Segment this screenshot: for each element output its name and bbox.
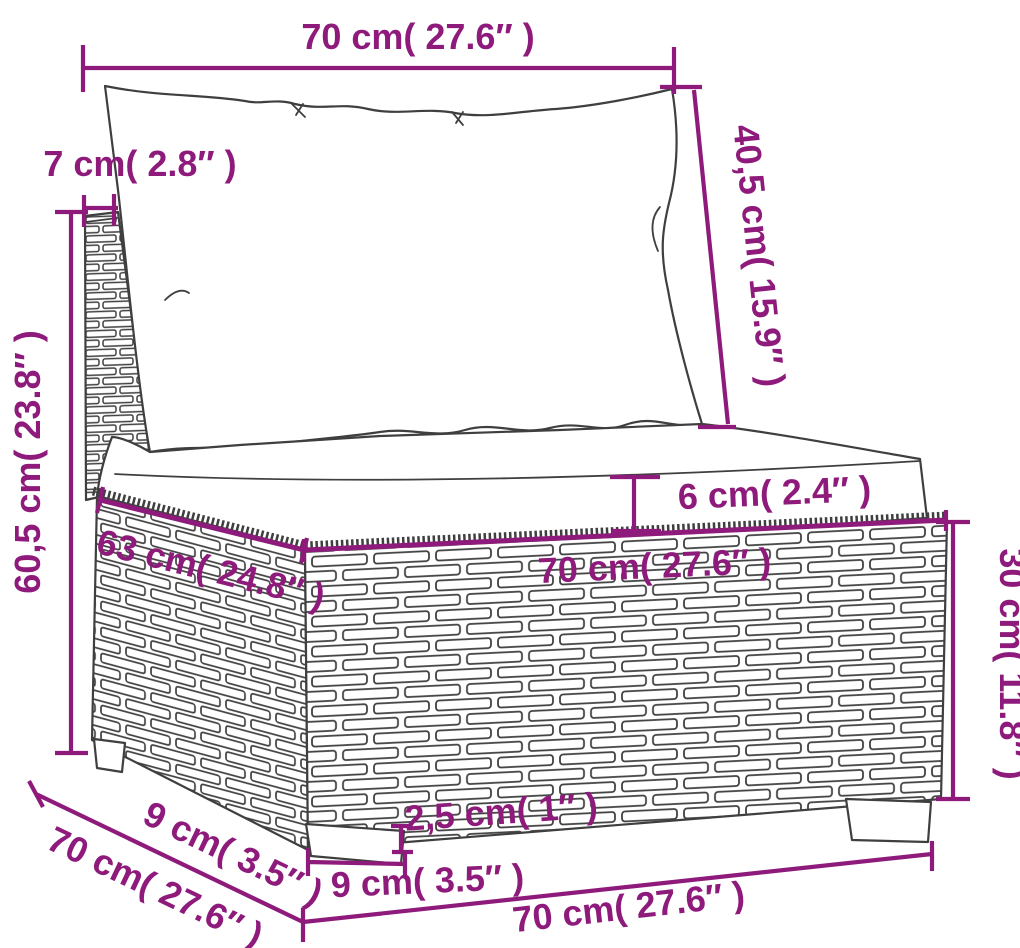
back-cushion-height-label: 40,5 cm( 15.9″ ) xyxy=(725,123,793,389)
dim-base-height: 30 cm( 11.8″ ) xyxy=(936,522,1020,799)
base-height-label: 30 cm( 11.8″ ) xyxy=(992,548,1020,779)
rear-left-leg xyxy=(94,739,125,772)
leg-width-label: 9 cm( 3.5″ ) xyxy=(330,856,525,905)
back-cushion xyxy=(105,86,702,452)
back-thickness-label: 7 cm( 2.8″ ) xyxy=(43,143,236,184)
front-left-leg xyxy=(306,824,404,864)
back-width-label: 70 cm( 27.6″ ) xyxy=(301,16,534,57)
overall-width-label: 70 cm( 27.6″ ) xyxy=(510,873,747,940)
overall-height-line xyxy=(55,212,88,753)
diagram-canvas: 70 cm( 27.6″ ) 7 cm( 2.8″ ) 40,5 cm( 15.… xyxy=(0,0,1020,948)
product-dimension-diagram: 70 cm( 27.6″ ) 7 cm( 2.8″ ) 40,5 cm( 15.… xyxy=(0,0,1020,948)
overall-height-label: 60,5 cm( 23.8″ ) xyxy=(7,330,48,593)
right-leg xyxy=(846,799,931,842)
dim-back-width: 70 cm( 27.6″ ) xyxy=(83,16,674,94)
seat-cushion-thickness-label: 6 cm( 2.4″ ) xyxy=(677,468,872,517)
dim-overall-height: 60,5 cm( 23.8″ ) xyxy=(7,212,88,753)
